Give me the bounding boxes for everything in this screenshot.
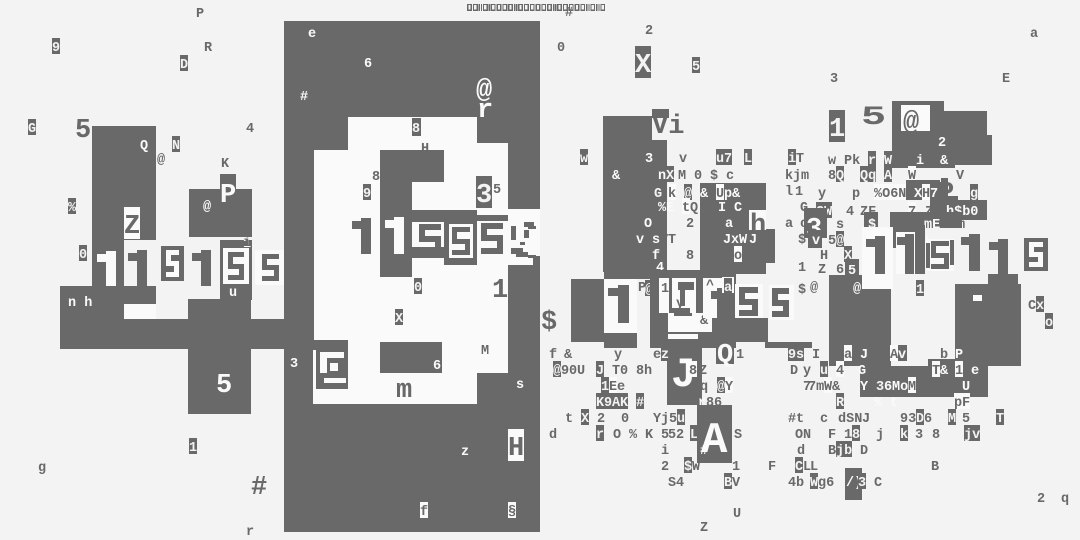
- svg-text:r: r: [477, 96, 493, 126]
- svg-text:6: 6: [884, 380, 892, 395]
- svg-text:Qq: Qq: [860, 169, 876, 184]
- svg-text:e: e: [653, 348, 661, 363]
- svg-text:D: D: [916, 412, 924, 427]
- svg-text:m: m: [801, 169, 809, 184]
- svg-text:q: q: [700, 380, 708, 395]
- svg-text:p: p: [954, 396, 962, 411]
- svg-text:1: 1: [798, 261, 806, 276]
- svg-text:D: D: [180, 58, 188, 73]
- svg-text:a: a: [724, 281, 732, 296]
- svg-text:G: G: [28, 122, 36, 137]
- svg-text:K: K: [620, 396, 629, 411]
- svg-text:v: v: [679, 152, 687, 167]
- svg-text:E: E: [609, 380, 617, 395]
- svg-text:t: t: [565, 412, 573, 427]
- svg-text:n: n: [836, 348, 844, 363]
- svg-text:^: ^: [706, 279, 714, 294]
- svg-text:0: 0: [569, 364, 577, 379]
- svg-text:H: H: [508, 434, 524, 464]
- svg-text:D: D: [860, 444, 868, 459]
- svg-text:3: 3: [858, 476, 866, 491]
- svg-text:1: 1: [955, 364, 963, 379]
- svg-text:T: T: [996, 412, 1004, 427]
- svg-text:G: G: [654, 187, 662, 202]
- svg-text:8: 8: [686, 249, 694, 264]
- svg-text:Y: Y: [725, 380, 734, 395]
- svg-text:3: 3: [876, 380, 884, 395]
- svg-text:i: i: [916, 154, 924, 169]
- svg-text:93: 93: [900, 412, 916, 427]
- svg-text:8: 8: [852, 428, 860, 443]
- svg-text:L: L: [690, 428, 698, 443]
- svg-text:n: n: [658, 169, 666, 184]
- svg-text:&: &: [940, 154, 949, 169]
- svg-text:m: m: [957, 218, 965, 233]
- svg-text:U: U: [577, 364, 585, 379]
- svg-text:9: 9: [363, 187, 371, 202]
- svg-text:x: x: [1036, 299, 1044, 314]
- svg-text:$: $: [541, 308, 557, 338]
- svg-text:u: u: [820, 364, 828, 379]
- svg-text:8: 8: [828, 169, 836, 184]
- svg-text:3: 3: [915, 428, 923, 443]
- svg-text:g: g: [38, 461, 46, 476]
- svg-text:s: s: [652, 233, 660, 248]
- svg-text:G: G: [858, 364, 866, 379]
- svg-text:M: M: [908, 380, 916, 395]
- svg-text:5: 5: [669, 412, 677, 427]
- svg-text:3: 3: [476, 181, 492, 211]
- svg-text:t: t: [890, 396, 898, 411]
- svg-text:c: c: [726, 169, 734, 184]
- svg-text:0: 0: [621, 412, 629, 427]
- svg-text:1: 1: [844, 428, 852, 443]
- svg-text:m: m: [396, 376, 412, 406]
- svg-text:X: X: [581, 412, 590, 427]
- svg-text:&: &: [732, 187, 741, 202]
- svg-text:#: #: [565, 6, 573, 21]
- svg-text:a: a: [844, 348, 852, 363]
- svg-text:1: 1: [492, 276, 508, 306]
- svg-text:6: 6: [433, 359, 441, 374]
- svg-text:4: 4: [246, 122, 254, 137]
- svg-text:z: z: [661, 348, 669, 363]
- svg-text:M: M: [678, 169, 686, 184]
- svg-text:#: #: [700, 444, 708, 459]
- svg-text:5: 5: [668, 428, 676, 443]
- svg-text:a: a: [785, 217, 793, 232]
- svg-text:@: @: [903, 108, 919, 138]
- svg-text:p: p: [852, 187, 860, 202]
- svg-text:S: S: [668, 476, 676, 491]
- svg-text:X: X: [635, 51, 652, 81]
- svg-text:X: X: [666, 169, 675, 184]
- svg-text:4: 4: [836, 364, 844, 379]
- svg-text:mE: mE: [924, 218, 940, 233]
- svg-text:Z: Z: [699, 364, 707, 379]
- svg-text:J: J: [749, 233, 757, 248]
- svg-text:u: u: [677, 412, 685, 427]
- svg-text:4: 4: [676, 476, 684, 491]
- svg-text:B: B: [828, 444, 836, 459]
- svg-text:2: 2: [661, 460, 669, 475]
- svg-text:o: o: [1045, 316, 1053, 331]
- svg-text:L: L: [810, 460, 818, 475]
- svg-text:7m: 7m: [808, 380, 824, 395]
- svg-text:C: C: [734, 201, 742, 216]
- svg-text:3: 3: [645, 152, 653, 167]
- svg-text:z: z: [461, 445, 469, 460]
- svg-text:g: g: [970, 187, 978, 202]
- svg-text:u: u: [716, 152, 724, 167]
- svg-text:2: 2: [1037, 492, 1045, 507]
- svg-text:O: O: [795, 428, 803, 443]
- svg-text:E: E: [666, 201, 674, 216]
- svg-text:2: 2: [938, 136, 946, 151]
- svg-text:0: 0: [79, 248, 87, 263]
- svg-text:E: E: [1002, 72, 1010, 87]
- svg-text:j: j: [661, 412, 669, 427]
- svg-text:B: B: [931, 460, 939, 475]
- svg-text:1: 1: [829, 115, 845, 145]
- svg-text:h: h: [644, 364, 652, 379]
- svg-text:5: 5: [848, 264, 856, 279]
- svg-text:%: %: [629, 428, 638, 443]
- svg-text:n h: n h: [68, 296, 92, 311]
- svg-text:t: t: [682, 201, 690, 216]
- svg-text:8: 8: [636, 364, 644, 379]
- svg-text:y: y: [818, 187, 826, 202]
- svg-text:2: 2: [686, 217, 694, 232]
- svg-text:&: &: [700, 187, 709, 202]
- svg-text:5: 5: [75, 116, 91, 146]
- svg-text:1: 1: [189, 441, 197, 456]
- svg-text:4: 4: [846, 205, 854, 220]
- svg-text:2: 2: [597, 412, 605, 427]
- svg-text:V: V: [732, 476, 741, 491]
- svg-text:2: 2: [645, 24, 653, 39]
- svg-text:j: j: [793, 169, 801, 184]
- svg-text:o: o: [734, 249, 742, 264]
- svg-text:6: 6: [924, 412, 932, 427]
- svg-text:C: C: [795, 460, 803, 475]
- svg-text:r: r: [596, 428, 604, 443]
- svg-text:k: k: [900, 428, 908, 443]
- svg-text:K: K: [221, 157, 230, 172]
- svg-text:&: &: [612, 169, 621, 184]
- svg-text:#: #: [300, 90, 308, 105]
- svg-text:0: 0: [694, 169, 702, 184]
- svg-text:w: w: [828, 154, 837, 169]
- svg-text:y: y: [803, 364, 811, 379]
- svg-text:8: 8: [689, 364, 697, 379]
- svg-text:§: §: [508, 505, 516, 520]
- svg-text:%: %: [874, 396, 883, 411]
- svg-text:1: 1: [916, 283, 924, 298]
- svg-text:K: K: [645, 428, 654, 443]
- svg-text:g6: g6: [818, 476, 834, 491]
- svg-text:&: &: [564, 348, 573, 363]
- svg-text:1: 1: [795, 185, 803, 200]
- svg-text:T: T: [612, 364, 620, 379]
- svg-text:1: 1: [732, 460, 740, 475]
- svg-text:@: @: [853, 282, 861, 297]
- svg-text:3: 3: [290, 357, 298, 372]
- svg-text:@: @: [203, 200, 211, 215]
- svg-text:Q: Q: [836, 169, 844, 184]
- svg-text:l: l: [785, 185, 793, 200]
- svg-text:1: 1: [736, 348, 744, 363]
- svg-text:Z: Z: [818, 263, 826, 278]
- svg-text:@: @: [553, 364, 561, 379]
- svg-text:3: 3: [830, 72, 838, 87]
- svg-text:dSN: dSN: [838, 412, 862, 427]
- svg-text:5: 5: [861, 102, 886, 133]
- svg-text:P: P: [196, 7, 204, 22]
- svg-text:@: @: [157, 153, 165, 168]
- svg-text:9: 9: [52, 41, 60, 56]
- svg-text:Q: Q: [140, 139, 148, 154]
- svg-text:J: J: [723, 233, 731, 248]
- svg-text:H: H: [922, 187, 930, 202]
- svg-text:I: I: [718, 201, 726, 216]
- svg-text:p: p: [724, 187, 732, 202]
- svg-text:H: H: [820, 249, 828, 264]
- svg-text:b: b: [796, 476, 804, 491]
- svg-text:v: v: [898, 348, 906, 363]
- svg-text:e: e: [884, 364, 892, 379]
- svg-text:s: s: [796, 348, 804, 363]
- svg-text:8: 8: [372, 170, 380, 185]
- svg-text:5: 5: [493, 183, 501, 198]
- svg-text:a: a: [725, 217, 733, 232]
- svg-text:F: F: [962, 396, 970, 411]
- svg-text:W: W: [692, 460, 701, 475]
- svg-text:d: d: [797, 444, 805, 459]
- svg-text:I: I: [812, 348, 820, 363]
- svg-text:r: r: [246, 525, 254, 540]
- svg-text:X: X: [395, 312, 404, 327]
- svg-text:@: @: [836, 234, 844, 249]
- svg-text:P: P: [220, 181, 236, 211]
- svg-text:#: #: [636, 396, 644, 411]
- svg-text:jb: jb: [836, 444, 852, 459]
- svg-text:N: N: [803, 428, 811, 443]
- svg-text:4: 4: [788, 476, 796, 491]
- svg-text:T: T: [932, 364, 940, 379]
- svg-text:R: R: [836, 396, 845, 411]
- svg-text:$: $: [684, 460, 692, 475]
- svg-text:Z: Z: [700, 521, 708, 536]
- svg-text:@: @: [717, 380, 725, 395]
- svg-text:C: C: [1028, 299, 1036, 314]
- svg-text:8: 8: [932, 428, 940, 443]
- svg-text:W: W: [739, 233, 748, 248]
- svg-text:$: $: [798, 283, 806, 298]
- svg-text:B: B: [724, 476, 732, 491]
- svg-text:5: 5: [692, 60, 700, 75]
- svg-text:%: %: [68, 201, 77, 216]
- svg-text:Mo: Mo: [892, 380, 908, 395]
- svg-text:Z: Z: [124, 212, 140, 242]
- svg-text:#: #: [251, 473, 267, 503]
- svg-text:5: 5: [828, 234, 836, 249]
- svg-text:s: s: [836, 218, 844, 233]
- svg-text:T: T: [796, 152, 804, 167]
- svg-text:7: 7: [724, 152, 732, 167]
- svg-text:k: k: [785, 169, 793, 184]
- svg-text:e: e: [971, 364, 979, 379]
- svg-text:i: i: [661, 444, 669, 459]
- svg-text:0: 0: [414, 281, 422, 296]
- svg-text:Y: Y: [860, 380, 869, 395]
- svg-text:1: 1: [661, 282, 669, 297]
- svg-text:P: P: [955, 348, 963, 363]
- svg-text:$: $: [710, 169, 718, 184]
- svg-text:U: U: [962, 380, 970, 395]
- svg-text:8: 8: [412, 122, 420, 137]
- svg-text:e: e: [308, 27, 316, 42]
- svg-text:J: J: [596, 364, 604, 379]
- svg-text:6: 6: [364, 57, 372, 72]
- svg-text:2: 2: [676, 428, 684, 443]
- svg-text:c: c: [820, 412, 828, 427]
- svg-text:F: F: [768, 460, 776, 475]
- svg-text:Q: Q: [717, 341, 733, 371]
- svg-text:V: V: [956, 169, 965, 184]
- svg-text:v: v: [812, 234, 820, 249]
- svg-text:A: A: [884, 169, 893, 184]
- svg-text:F: F: [828, 428, 836, 443]
- svg-text:0: 0: [620, 364, 628, 379]
- svg-text:#: #: [788, 412, 796, 427]
- svg-text:U: U: [716, 187, 724, 202]
- svg-text:t: t: [796, 412, 804, 427]
- svg-text:w: w: [580, 152, 589, 167]
- svg-text:u: u: [229, 286, 237, 301]
- svg-text:N: N: [172, 139, 180, 154]
- svg-text:jv: jv: [964, 428, 980, 443]
- svg-text:@: @: [810, 281, 818, 296]
- svg-text:H: H: [421, 142, 429, 157]
- svg-text:q: q: [1061, 492, 1069, 507]
- svg-text:&: &: [940, 364, 949, 379]
- svg-text:L: L: [744, 152, 752, 167]
- svg-text:T: T: [668, 233, 676, 248]
- svg-text:C: C: [874, 476, 882, 491]
- svg-text:U: U: [733, 507, 741, 522]
- svg-text:D: D: [790, 364, 798, 379]
- svg-text:1: 1: [601, 380, 609, 395]
- svg-text:f: f: [549, 348, 557, 363]
- svg-text:&: &: [832, 380, 841, 395]
- svg-text:y: y: [614, 348, 622, 363]
- svg-text:S: S: [734, 428, 742, 443]
- svg-text:e: e: [617, 380, 625, 395]
- svg-text:Q: Q: [690, 201, 698, 216]
- svg-text:9: 9: [788, 348, 796, 363]
- svg-text:k: k: [668, 187, 676, 202]
- svg-text:a: a: [1030, 27, 1038, 42]
- svg-text:9: 9: [561, 364, 569, 379]
- svg-text:M: M: [481, 344, 489, 359]
- svg-text:9: 9: [604, 396, 612, 411]
- svg-text:R: R: [204, 41, 213, 56]
- svg-text:0: 0: [557, 41, 565, 56]
- svg-text:J: J: [862, 412, 870, 427]
- svg-text:O: O: [613, 428, 621, 443]
- svg-text:x: x: [731, 233, 739, 248]
- svg-text:Vi: Vi: [652, 112, 684, 142]
- svg-text:v: v: [636, 233, 644, 248]
- svg-text:d: d: [549, 428, 557, 443]
- svg-text:5: 5: [216, 371, 232, 401]
- svg-text:i: i: [788, 152, 796, 167]
- svg-text:%O6N: %O6N: [874, 187, 906, 202]
- svg-text:j: j: [876, 428, 884, 443]
- svg-text:Pk: Pk: [844, 154, 860, 169]
- svg-text:7: 7: [930, 187, 938, 202]
- svg-text:i: i: [243, 236, 251, 251]
- svg-text:O: O: [644, 217, 652, 232]
- svg-text:J: J: [860, 348, 868, 363]
- svg-text:5: 5: [962, 412, 970, 427]
- svg-text:M: M: [948, 412, 956, 427]
- svg-text:f: f: [420, 505, 428, 520]
- svg-text:s: s: [516, 378, 524, 393]
